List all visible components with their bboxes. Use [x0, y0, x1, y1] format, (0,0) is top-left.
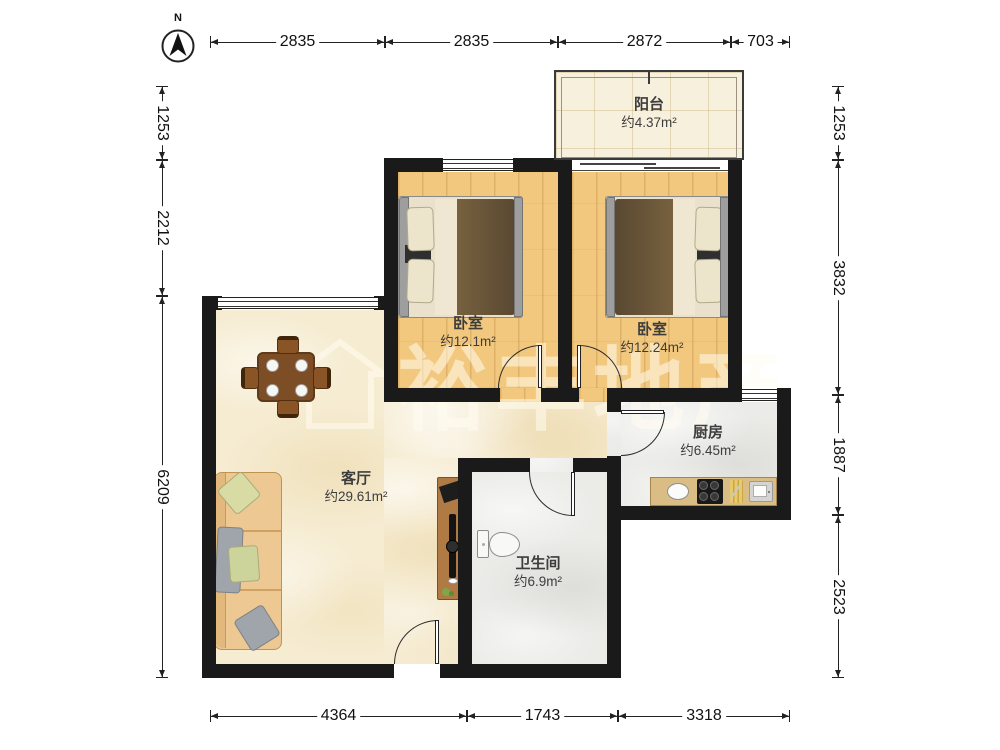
sliding-panel [580, 163, 656, 165]
room-label-bathroom: 卫生间 约6.9m² [514, 555, 562, 591]
room-name: 卧室 [620, 321, 683, 339]
dimension-segment-right-0: 1253 [832, 86, 844, 160]
dimension-tick [789, 710, 790, 722]
wall-segment [728, 158, 742, 402]
bed-sheet [435, 199, 457, 315]
dimension-tick [832, 514, 844, 515]
dimension-tick [210, 710, 211, 722]
dining-chair-bottom [277, 400, 299, 418]
dimension-arrow [619, 713, 626, 719]
dimension-line [210, 716, 467, 717]
threshold-bathroom [530, 458, 573, 472]
window-bedroom-left [443, 159, 513, 171]
bed-sheet [673, 199, 695, 315]
dimension-tick [156, 160, 168, 161]
room-label-balcony: 阳台 约4.37m² [621, 96, 677, 132]
dimension-tick [156, 295, 168, 296]
door-leaf-entry [435, 620, 439, 664]
dimension-label: 3832 [829, 256, 847, 300]
dimension-arrow [211, 713, 218, 719]
dimension-arrow [835, 507, 841, 514]
burner [710, 492, 719, 501]
dimension-tick [730, 36, 731, 48]
room-name: 卧室 [440, 315, 496, 333]
appliance-knob [768, 491, 770, 493]
dimension-arrow [782, 713, 789, 719]
dimension-tick [557, 36, 558, 48]
dimension-tick [558, 36, 559, 48]
room-label-kitchen: 厨房 约6.45m² [680, 424, 736, 460]
dimension-segment-left-0: 1253 [156, 86, 168, 160]
dimension-arrow [559, 39, 566, 45]
dimension-tick [156, 296, 168, 297]
burner [699, 492, 708, 501]
wall-segment [607, 388, 621, 412]
room-area: 约4.37m² [621, 114, 677, 132]
dimension-arrow [159, 670, 165, 677]
toilet-button [482, 543, 485, 546]
dimension-arrow [468, 713, 475, 719]
bed-footboard [606, 197, 615, 317]
room-area: 约12.24m² [620, 339, 683, 357]
dimension-line [385, 42, 558, 43]
wall-segment [777, 388, 791, 520]
dimension-label: 1743 [521, 707, 565, 725]
dimension-tick [467, 710, 468, 722]
dimension-tick [731, 36, 732, 48]
dimension-line [838, 86, 839, 160]
dimension-line [210, 42, 385, 43]
dimension-segment-left-2: 6209 [156, 296, 168, 678]
dimension-arrow [159, 297, 165, 304]
appliance-window [753, 485, 767, 497]
dimension-tick [832, 160, 844, 161]
dimension-arrow [159, 161, 165, 168]
dimension-tick [832, 86, 844, 87]
dimension-arrow [211, 39, 218, 45]
wall-segment [558, 158, 572, 402]
burner [699, 481, 708, 490]
dimension-tick [832, 159, 844, 160]
bed-blanket [615, 199, 673, 315]
wall-segment [384, 158, 398, 402]
wall-segment [384, 388, 500, 402]
compass-north-label: N [160, 12, 196, 24]
dimension-segment-top-2: 2872 [558, 36, 731, 48]
door-leaf-bedroom-left [538, 345, 542, 388]
dimension-arrow [159, 152, 165, 159]
pillow [694, 259, 723, 304]
dimension-arrow [732, 39, 739, 45]
dimension-segment-top-3: 703 [731, 36, 790, 48]
small-appliance [749, 481, 773, 502]
dimension-segment-left-1: 2212 [156, 160, 168, 296]
plate [266, 359, 279, 372]
room-label-bedroom-left: 卧室 约12.1m² [440, 315, 496, 351]
room-name: 厨房 [680, 424, 736, 442]
dimension-segment-right-3: 2523 [832, 515, 844, 678]
dimension-tick [617, 710, 618, 722]
balcony-window-tick [648, 70, 650, 84]
dimension-label: 1887 [829, 433, 847, 477]
dimension-label: 2212 [153, 206, 171, 250]
dimension-arrow [459, 713, 466, 719]
dimension-arrow [835, 516, 841, 523]
dimension-label: 4364 [317, 707, 361, 725]
door-leaf-kitchen [621, 410, 664, 414]
wall-segment [607, 506, 791, 520]
compass-icon [160, 28, 196, 64]
door-leaf-bathroom [571, 472, 575, 516]
window-living-room [218, 297, 378, 309]
stove [697, 479, 723, 504]
dimension-arrow [835, 387, 841, 394]
dimension-tick [832, 677, 844, 678]
dimension-segment-top-0: 2835 [210, 36, 385, 48]
dimension-arrow [610, 713, 617, 719]
dining-chair-left [241, 367, 259, 389]
dimension-line [162, 86, 163, 160]
room-area: 约29.61m² [324, 488, 387, 506]
wall-segment [458, 458, 472, 678]
plate [295, 384, 308, 397]
room-name: 阳台 [621, 96, 677, 114]
room-area: 约6.9m² [514, 573, 562, 591]
dimension-arrow [835, 161, 841, 168]
floor-plan-canvas: 裕丰地产 [0, 0, 1000, 750]
dimension-tick [466, 710, 467, 722]
dimension-arrow [835, 152, 841, 159]
bed-bedroom-left [398, 196, 523, 318]
cutting-board [730, 480, 743, 503]
wall-segment [202, 664, 394, 678]
wall-segment [472, 458, 530, 472]
plant-icon [449, 591, 454, 596]
dimension-arrow [159, 288, 165, 295]
dimension-line [618, 716, 790, 717]
room-area: 约6.45m² [680, 442, 736, 460]
dining-chair-top [277, 336, 299, 354]
wall-segment [607, 456, 621, 664]
dimension-tick [832, 395, 844, 396]
room-area: 约12.1m² [440, 333, 496, 351]
dimension-tick [618, 710, 619, 722]
dimension-line [162, 296, 163, 678]
dimension-segment-right-1: 3832 [832, 160, 844, 395]
dimension-line [558, 42, 731, 43]
sofa-pillow-green [228, 545, 260, 583]
pillow [406, 259, 435, 304]
dimension-arrow [835, 670, 841, 677]
wall-segment [620, 388, 742, 402]
dimension-label: 2835 [276, 33, 320, 51]
bed-blanket [457, 199, 515, 315]
dimension-arrow [377, 39, 384, 45]
dimension-tick [156, 159, 168, 160]
plate [295, 359, 308, 372]
room-name: 客厅 [324, 470, 387, 488]
dimension-arrow [386, 39, 393, 45]
dimension-tick [385, 36, 386, 48]
sliding-panel [644, 167, 720, 169]
pillow [406, 207, 435, 252]
dimension-line [838, 160, 839, 395]
dimension-line [838, 515, 839, 678]
dimension-label: 3318 [682, 707, 726, 725]
decor-dish [448, 578, 458, 584]
dimension-tick [156, 677, 168, 678]
dimension-arrow [835, 396, 841, 403]
dimension-label: 6209 [153, 465, 171, 509]
window-kitchen [742, 389, 777, 401]
dimension-arrow [782, 39, 789, 45]
dimension-line [838, 395, 839, 515]
dimension-arrow [550, 39, 557, 45]
dimension-line [731, 42, 790, 43]
dimension-label: 2835 [450, 33, 494, 51]
dimension-segment-top-1: 2835 [385, 36, 558, 48]
dimension-tick [384, 36, 385, 48]
dimension-line [162, 160, 163, 296]
plate [266, 384, 279, 397]
dimension-label: 1253 [829, 101, 847, 145]
dimension-arrow [835, 87, 841, 94]
dimension-label: 1253 [153, 101, 171, 145]
dimension-label: 703 [743, 33, 778, 51]
burner [710, 481, 719, 490]
dimension-arrow [159, 87, 165, 94]
knife-icon [731, 484, 742, 498]
door-leaf-bedroom-right [577, 345, 581, 388]
room-name: 卫生间 [514, 555, 562, 573]
wall-segment [541, 388, 579, 402]
toilet-tank [477, 530, 489, 558]
sink [667, 483, 689, 500]
room-label-living-room: 客厅 约29.61m² [324, 470, 387, 506]
dimension-tick [832, 515, 844, 516]
dimension-segment-right-2: 1887 [832, 395, 844, 515]
kitchen-counter [650, 477, 777, 506]
dimension-segment-bottom-0: 4364 [210, 710, 467, 722]
dimension-tick [156, 86, 168, 87]
pillow [694, 207, 723, 252]
dimension-arrow [723, 39, 730, 45]
wall-segment [202, 296, 216, 678]
dimension-tick [832, 394, 844, 395]
bed-bedroom-right [605, 196, 730, 318]
dimension-label: 2523 [829, 575, 847, 619]
dimension-segment-bottom-1: 1743 [467, 710, 618, 722]
bed-footboard [514, 197, 523, 317]
dimension-tick [210, 36, 211, 48]
sliding-door-balcony [572, 159, 728, 171]
dimension-label: 2872 [623, 33, 667, 51]
dimension-tick [789, 36, 790, 48]
dimension-line [467, 716, 618, 717]
dimension-segment-bottom-2: 3318 [618, 710, 790, 722]
room-label-bedroom-right: 卧室 约12.24m² [620, 321, 683, 357]
dining-chair-right [313, 367, 331, 389]
